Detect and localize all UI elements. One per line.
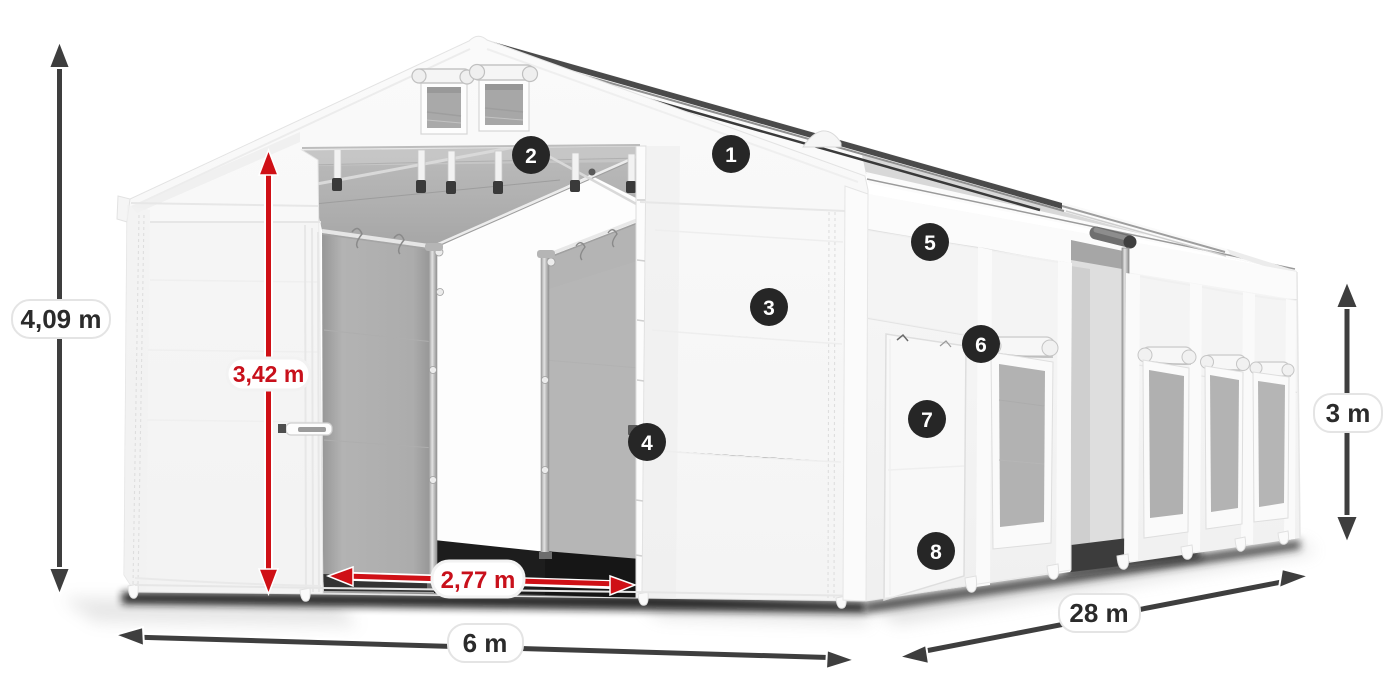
svg-text:4,09 m: 4,09 m — [21, 304, 102, 334]
svg-text:6: 6 — [975, 334, 987, 357]
svg-text:8: 8 — [930, 541, 942, 564]
svg-text:1: 1 — [725, 144, 737, 167]
svg-text:28 m: 28 m — [1069, 598, 1128, 628]
svg-text:7: 7 — [921, 409, 933, 432]
svg-text:5: 5 — [924, 232, 936, 255]
svg-text:4: 4 — [641, 432, 653, 455]
svg-text:3 m: 3 m — [1326, 398, 1371, 428]
svg-text:3,42 m: 3,42 m — [233, 361, 305, 387]
svg-text:3: 3 — [763, 297, 775, 320]
svg-text:2: 2 — [525, 145, 537, 168]
svg-text:6 m: 6 m — [463, 628, 508, 658]
svg-text:2,77 m: 2,77 m — [441, 567, 516, 594]
